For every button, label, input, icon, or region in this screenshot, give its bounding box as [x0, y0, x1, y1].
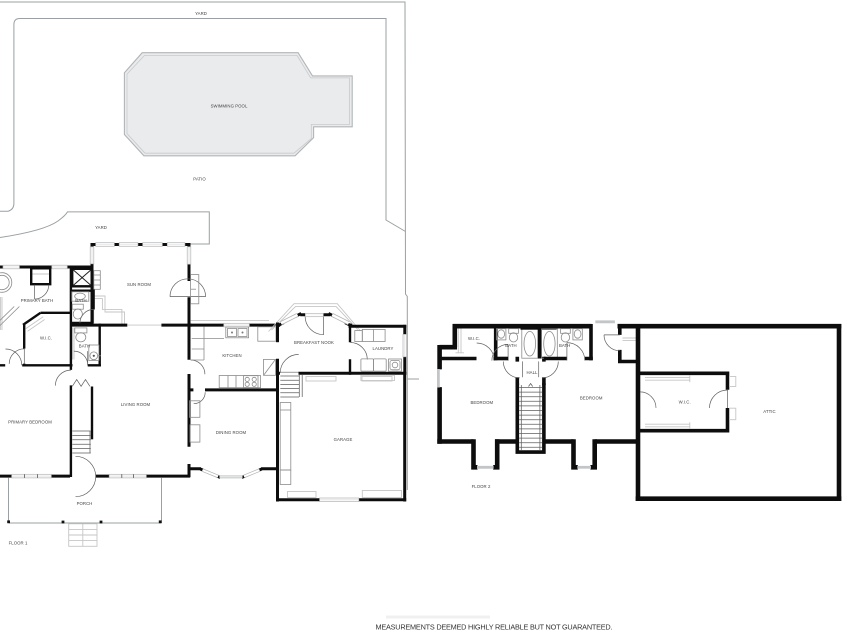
svg-text:ATTIC: ATTIC	[763, 409, 775, 414]
svg-text:GARAGE: GARAGE	[334, 437, 353, 442]
svg-text:BATH: BATH	[505, 343, 516, 348]
svg-text:YARD: YARD	[195, 11, 207, 16]
svg-text:PORCH: PORCH	[77, 501, 93, 506]
svg-text:BEDROOM: BEDROOM	[580, 396, 603, 401]
svg-text:PRIMARY BATH: PRIMARY BATH	[21, 298, 53, 303]
svg-text:W.I.C.: W.I.C.	[468, 336, 480, 341]
svg-text:MEASUREMENTS DEEMED HIGHLY REL: MEASUREMENTS DEEMED HIGHLY RELIABLE BUT …	[376, 623, 613, 632]
svg-text:BATH: BATH	[79, 344, 90, 349]
svg-text:BATH: BATH	[559, 343, 570, 348]
svg-text:BREAKFAST NOOK: BREAKFAST NOOK	[294, 340, 334, 345]
svg-text:FLOOR 2: FLOOR 2	[472, 484, 491, 489]
svg-text:PRIMARY BEDROOM: PRIMARY BEDROOM	[8, 420, 52, 425]
svg-text:BATH: BATH	[75, 298, 86, 303]
svg-text:W.I.C.: W.I.C.	[679, 400, 691, 405]
svg-text:PATIO: PATIO	[193, 177, 206, 182]
svg-text:YARD: YARD	[95, 225, 107, 230]
svg-text:SWIMMING POOL: SWIMMING POOL	[211, 104, 248, 109]
svg-text:BEDROOM: BEDROOM	[470, 400, 493, 405]
svg-text:KITCHEN: KITCHEN	[222, 353, 241, 358]
svg-text:LAUNDRY: LAUNDRY	[373, 346, 394, 351]
svg-text:W.I.C.: W.I.C.	[40, 336, 52, 341]
svg-text:FLOOR 1: FLOOR 1	[9, 541, 28, 546]
svg-text:HALL: HALL	[527, 370, 539, 375]
svg-text:SUN ROOM: SUN ROOM	[127, 282, 151, 287]
svg-text:LIVING ROOM: LIVING ROOM	[121, 402, 151, 407]
svg-text:DINING ROOM: DINING ROOM	[216, 430, 247, 435]
